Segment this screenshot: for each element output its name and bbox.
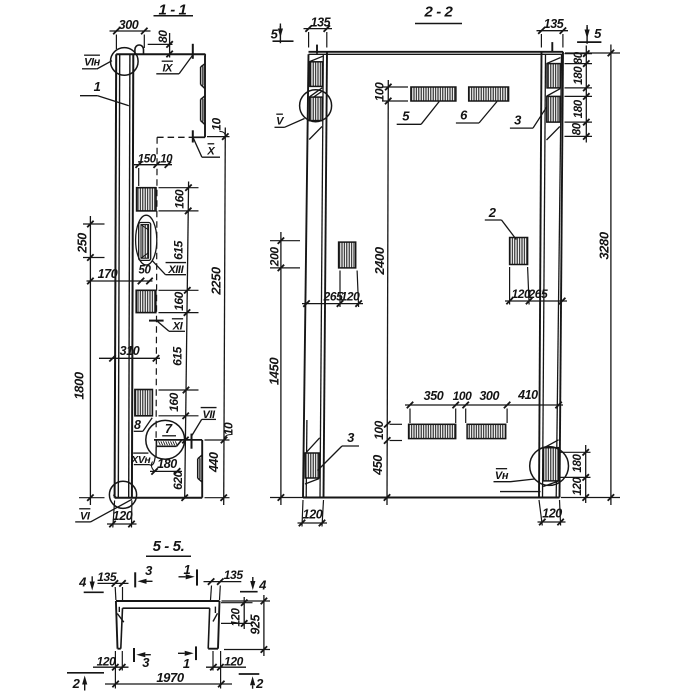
svg-text:5: 5 (271, 26, 279, 41)
svg-text:10: 10 (160, 154, 173, 166)
svg-text:120: 120 (113, 509, 133, 523)
svg-text:160: 160 (167, 392, 181, 412)
svg-text:3: 3 (514, 113, 522, 128)
svg-text:180: 180 (157, 457, 177, 471)
svg-text:XI: XI (172, 320, 184, 332)
svg-text:120: 120 (572, 477, 584, 496)
svg-text:100: 100 (372, 420, 386, 440)
svg-text:1450: 1450 (266, 357, 281, 385)
svg-text:450: 450 (371, 455, 385, 476)
svg-text:80: 80 (571, 122, 583, 135)
svg-text:IX: IX (163, 63, 174, 75)
svg-text:1970: 1970 (156, 670, 184, 685)
svg-text:10: 10 (210, 118, 224, 131)
svg-text:615: 615 (171, 346, 185, 366)
svg-text:160: 160 (172, 291, 186, 311)
svg-text:135: 135 (311, 16, 332, 30)
svg-text:80: 80 (156, 30, 170, 43)
svg-text:925: 925 (249, 614, 263, 635)
svg-text:VI: VI (80, 510, 91, 522)
svg-text:4: 4 (78, 575, 87, 590)
svg-text:120: 120 (97, 655, 117, 669)
svg-text:2250: 2250 (208, 266, 223, 295)
svg-text:180: 180 (572, 454, 584, 473)
svg-text:VIн: VIн (84, 57, 101, 69)
svg-text:1: 1 (183, 562, 190, 577)
svg-text:170: 170 (98, 267, 118, 281)
svg-text:135: 135 (224, 568, 244, 582)
svg-text:3: 3 (142, 655, 150, 670)
svg-text:100: 100 (372, 82, 386, 102)
svg-text:250: 250 (76, 233, 90, 254)
svg-text:135: 135 (544, 17, 565, 31)
svg-text:135: 135 (97, 570, 117, 584)
svg-text:6: 6 (460, 107, 468, 122)
svg-text:1: 1 (183, 656, 190, 671)
svg-text:50: 50 (139, 265, 152, 277)
svg-text:265: 265 (527, 287, 548, 301)
svg-text:3280: 3280 (596, 231, 611, 259)
svg-text:120: 120 (224, 654, 244, 668)
svg-text:8: 8 (134, 418, 141, 432)
svg-text:3: 3 (347, 430, 355, 445)
svg-text:100: 100 (453, 389, 473, 403)
svg-text:1: 1 (94, 79, 101, 94)
svg-text:2: 2 (255, 676, 264, 691)
svg-text:410: 410 (517, 388, 538, 402)
svg-text:5: 5 (402, 109, 410, 124)
svg-text:2: 2 (72, 676, 81, 691)
svg-text:150: 150 (138, 154, 157, 166)
svg-text:120: 120 (303, 508, 323, 522)
svg-text:X: X (206, 145, 215, 157)
svg-text:350: 350 (424, 389, 444, 403)
svg-text:620: 620 (171, 470, 185, 490)
svg-text:180: 180 (573, 66, 585, 85)
svg-text:5: 5 (594, 26, 602, 41)
svg-text:2: 2 (488, 205, 497, 220)
svg-text:7: 7 (165, 421, 173, 436)
svg-text:Vн: Vн (495, 470, 509, 482)
svg-text:160: 160 (173, 189, 187, 209)
svg-text:10: 10 (222, 422, 236, 435)
svg-text:5 - 5.: 5 - 5. (153, 538, 185, 555)
svg-text:180: 180 (573, 99, 585, 118)
svg-text:300: 300 (119, 18, 139, 32)
svg-text:300: 300 (479, 389, 499, 403)
svg-text:4: 4 (258, 578, 267, 593)
svg-text:2 - 2: 2 - 2 (423, 4, 453, 21)
svg-text:120: 120 (542, 507, 562, 521)
svg-text:120: 120 (230, 608, 242, 627)
svg-text:615: 615 (172, 240, 186, 260)
svg-text:200: 200 (268, 247, 282, 268)
svg-text:440: 440 (207, 452, 221, 473)
svg-text:120: 120 (341, 290, 361, 304)
svg-text:1800: 1800 (71, 371, 86, 399)
svg-text:2400: 2400 (372, 246, 387, 275)
svg-text:310: 310 (120, 344, 140, 358)
svg-text:3: 3 (145, 563, 153, 578)
